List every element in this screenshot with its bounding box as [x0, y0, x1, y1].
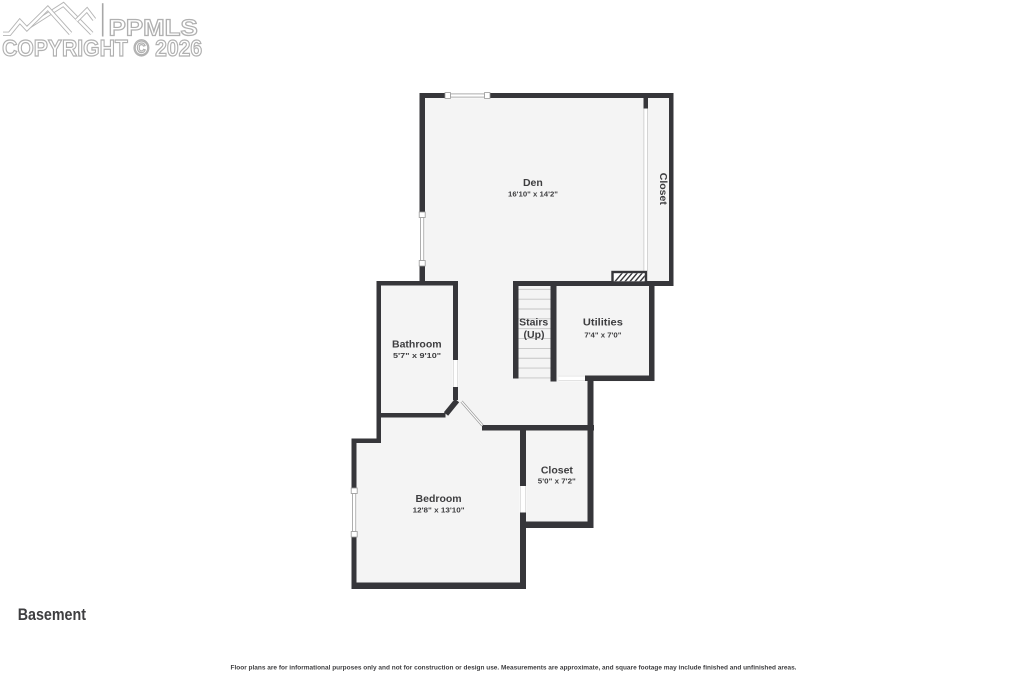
svg-text:Closet: Closet	[657, 173, 669, 206]
svg-text:Closet: Closet	[541, 464, 574, 476]
svg-text:5'0" x 7'2": 5'0" x 7'2"	[538, 476, 576, 485]
svg-text:Bedroom: Bedroom	[416, 493, 462, 505]
svg-text:Bathroom: Bathroom	[392, 339, 442, 351]
svg-text:Utilities: Utilities	[583, 317, 623, 329]
svg-text:COPYRIGHT © 2026: COPYRIGHT © 2026	[2, 35, 202, 61]
svg-text:Basement: Basement	[18, 605, 87, 624]
svg-text:16'10" x 14'2": 16'10" x 14'2"	[508, 189, 558, 198]
svg-text:Floor plans are for informatio: Floor plans are for informational purpos…	[231, 665, 797, 672]
svg-text:Stairs: Stairs	[519, 316, 548, 328]
svg-text:(Up): (Up)	[524, 329, 545, 341]
svg-text:Den: Den	[523, 177, 543, 189]
svg-text:5'7" x 9'10": 5'7" x 9'10"	[393, 351, 442, 360]
svg-text:12'8" x 13'10": 12'8" x 13'10"	[413, 505, 465, 514]
svg-text:7'4" x 7'0": 7'4" x 7'0"	[584, 330, 621, 339]
